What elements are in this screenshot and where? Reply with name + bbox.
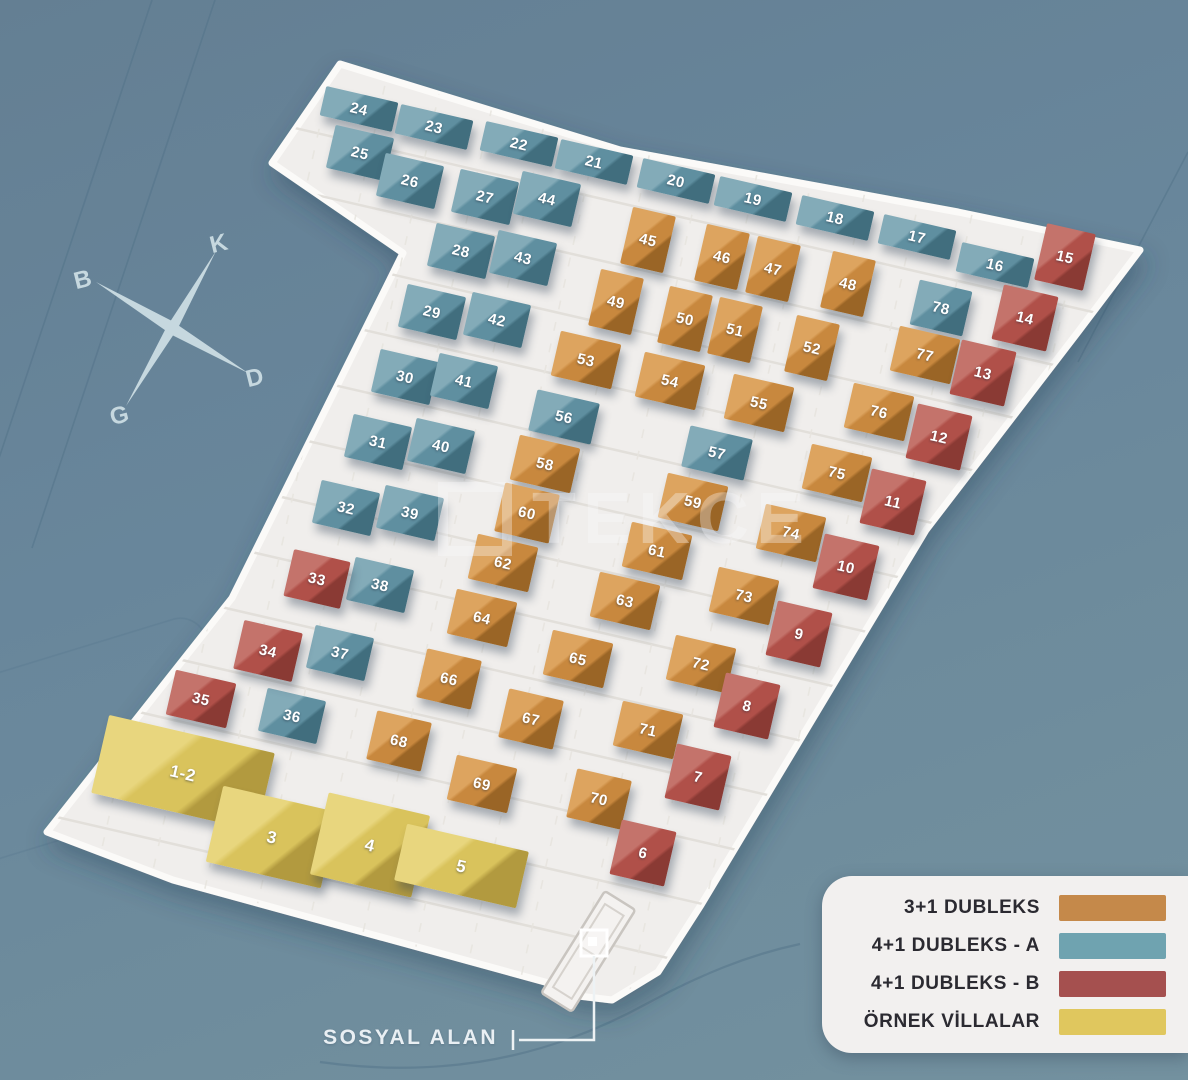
villa-43[interactable]: 43 [489, 230, 557, 286]
legend-row-3plus1-dubleks: 3+1 DUBLEKS [822, 893, 1166, 922]
villa-number: 12 [929, 428, 950, 447]
villa-number: 77 [915, 346, 936, 365]
villa-number: 72 [691, 655, 712, 674]
villa-66[interactable]: 66 [416, 648, 482, 709]
villa-number: 78 [931, 299, 952, 318]
legend-row-ornek-villalar: ÖRNEK VİLLALAR [822, 1007, 1166, 1036]
villa-number: 48 [838, 275, 859, 294]
villa-number: 55 [749, 394, 770, 413]
villa-37[interactable]: 37 [306, 625, 374, 681]
villa-41[interactable]: 41 [430, 353, 498, 409]
villa-number: 71 [638, 721, 659, 740]
villa-24[interactable]: 24 [320, 86, 399, 132]
villa-31[interactable]: 31 [344, 414, 412, 470]
villa-35[interactable]: 35 [166, 670, 237, 729]
villa-47[interactable]: 47 [745, 236, 801, 302]
villa-64[interactable]: 64 [447, 589, 518, 648]
villa-number: 74 [781, 524, 802, 543]
villa-11[interactable]: 11 [859, 468, 926, 535]
villa-number: 20 [666, 172, 687, 191]
villa-32[interactable]: 32 [312, 480, 380, 536]
villa-19[interactable]: 19 [714, 176, 793, 222]
villa-78[interactable]: 78 [910, 280, 973, 337]
villa-51[interactable]: 51 [707, 297, 763, 363]
villa-number: 75 [827, 464, 848, 483]
villa-16[interactable]: 16 [956, 242, 1035, 288]
villa-number: 76 [869, 403, 890, 422]
villa-number: 8 [741, 698, 753, 715]
villa-number: 33 [307, 570, 328, 589]
villa-number: 62 [493, 554, 514, 573]
villa-number: 3 [265, 828, 279, 847]
villa-number: 29 [422, 303, 443, 322]
villa-number: 25 [350, 144, 371, 163]
villa-71[interactable]: 71 [613, 701, 684, 760]
villa-34[interactable]: 34 [233, 620, 303, 682]
villa-number: 17 [907, 228, 928, 247]
villa-7[interactable]: 7 [664, 743, 731, 810]
villa-number: 49 [606, 293, 627, 312]
villa-number: 68 [389, 732, 410, 751]
villa-53[interactable]: 53 [551, 331, 622, 390]
villa-56[interactable]: 56 [528, 389, 600, 444]
villa-number: 64 [472, 609, 493, 628]
villa-number: 50 [675, 310, 696, 329]
villa-15[interactable]: 15 [1034, 223, 1096, 291]
villa-68[interactable]: 68 [366, 710, 432, 771]
villa-60[interactable]: 60 [494, 482, 560, 543]
villa-number: 24 [349, 100, 370, 119]
villa-number: 31 [368, 433, 389, 452]
legend-panel: 3+1 DUBLEKS 4+1 DUBLEKS - A 4+1 DUBLEKS … [822, 876, 1188, 1053]
villa-number: 27 [475, 188, 496, 207]
villa-57[interactable]: 57 [681, 425, 753, 480]
villa-28[interactable]: 28 [427, 223, 495, 279]
villa-76[interactable]: 76 [844, 383, 915, 442]
villa-number: 57 [707, 444, 728, 463]
villa-number: 19 [743, 190, 764, 209]
villa-number: 26 [400, 172, 421, 191]
villa-number: 54 [660, 372, 681, 391]
villa-9[interactable]: 9 [765, 600, 832, 667]
villa-number: 16 [985, 256, 1006, 275]
villa-33[interactable]: 33 [283, 549, 350, 609]
villa-number: 37 [330, 644, 351, 663]
villa-75[interactable]: 75 [802, 444, 873, 503]
villa-number: 44 [537, 190, 558, 209]
villa-52[interactable]: 52 [784, 315, 840, 381]
villa-number: 34 [258, 642, 279, 661]
villa-39[interactable]: 39 [376, 485, 444, 541]
villa-number: 47 [763, 260, 784, 279]
villa-number: 6 [637, 845, 649, 862]
villa-number: 53 [576, 351, 597, 370]
villa-21[interactable]: 21 [555, 139, 634, 185]
villa-42[interactable]: 42 [463, 292, 531, 348]
villa-67[interactable]: 67 [498, 688, 564, 749]
villa-55[interactable]: 55 [724, 374, 795, 433]
villa-number: 7 [692, 769, 704, 786]
villa-5[interactable]: 5 [394, 824, 529, 909]
villa-number: 13 [973, 364, 994, 383]
villa-number: 1-2 [168, 762, 197, 784]
legend-swatch-red [1059, 971, 1166, 997]
villa-61[interactable]: 61 [622, 522, 693, 581]
villa-number: 67 [521, 710, 542, 729]
villa-17[interactable]: 17 [878, 214, 957, 260]
villa-40[interactable]: 40 [407, 418, 475, 474]
villa-30[interactable]: 30 [371, 349, 439, 405]
villa-number: 4 [363, 836, 377, 855]
villa-65[interactable]: 65 [543, 630, 614, 689]
villa-number: 65 [568, 650, 589, 669]
legend-label: 4+1 DUBLEKS - A [872, 935, 1040, 957]
site-plan-stage: K B D G 24232221201918171625262744284329… [0, 0, 1188, 1080]
villa-77[interactable]: 77 [890, 326, 961, 385]
villa-number: 11 [883, 493, 903, 511]
villa-number: 21 [584, 153, 605, 172]
villa-62[interactable]: 62 [468, 534, 539, 593]
villa-number: 73 [734, 587, 755, 606]
villa-63[interactable]: 63 [590, 572, 661, 631]
villa-number: 18 [825, 209, 846, 228]
social-area-label: SOSYAL ALAN [320, 1026, 498, 1050]
villa-number: 70 [589, 790, 610, 809]
villa-27[interactable]: 27 [451, 169, 519, 225]
villa-18[interactable]: 18 [796, 195, 875, 241]
villa-number: 30 [395, 368, 416, 387]
villa-number: 51 [725, 321, 746, 340]
villa-59[interactable]: 59 [658, 473, 729, 532]
villa-26[interactable]: 26 [376, 153, 444, 209]
legend-label: ÖRNEK VİLLALAR [864, 1011, 1040, 1033]
villa-number: 35 [191, 690, 212, 709]
villa-49[interactable]: 49 [588, 269, 644, 335]
villa-number: 9 [793, 626, 805, 643]
legend-row-4plus1-dubleks-b: 4+1 DUBLEKS - B [822, 969, 1166, 998]
villa-number: 46 [712, 248, 733, 267]
villa-number: 28 [451, 242, 472, 261]
villa-number: 23 [424, 118, 445, 137]
legend-swatch-yellow [1059, 1009, 1166, 1035]
villa-6[interactable]: 6 [609, 819, 676, 886]
villa-20[interactable]: 20 [637, 158, 716, 204]
villa-number: 5 [454, 857, 468, 876]
villa-number: 40 [431, 437, 452, 456]
villa-12[interactable]: 12 [905, 403, 972, 470]
villa-73[interactable]: 73 [709, 567, 780, 626]
legend-label: 3+1 DUBLEKS [904, 897, 1040, 919]
villa-14[interactable]: 14 [991, 284, 1058, 351]
villa-number: 45 [638, 231, 659, 250]
villa-number: 60 [517, 504, 538, 523]
villa-number: 61 [647, 542, 668, 561]
legend-swatch-orange [1059, 895, 1166, 921]
villa-13[interactable]: 13 [949, 339, 1016, 406]
villa-number: 14 [1015, 309, 1036, 328]
villa-number: 32 [336, 499, 357, 518]
villa-number: 52 [802, 339, 823, 358]
villa-46[interactable]: 46 [694, 224, 750, 290]
legend-swatch-teal [1059, 933, 1166, 959]
villa-54[interactable]: 54 [635, 352, 706, 411]
villa-69[interactable]: 69 [447, 755, 518, 814]
villa-number: 38 [370, 576, 391, 595]
villa-36[interactable]: 36 [258, 688, 326, 744]
villa-50[interactable]: 50 [657, 286, 713, 352]
villa-number: 41 [454, 372, 475, 391]
villa-10[interactable]: 10 [812, 533, 879, 600]
villa-number: 15 [1055, 248, 1076, 267]
villa-number: 42 [487, 311, 508, 330]
villa-44[interactable]: 44 [513, 171, 581, 227]
villa-29[interactable]: 29 [398, 284, 466, 340]
villa-48[interactable]: 48 [820, 251, 876, 317]
villa-number: 59 [683, 493, 704, 512]
villa-number: 22 [509, 135, 530, 154]
villa-23[interactable]: 23 [395, 104, 474, 150]
villa-number: 63 [615, 592, 636, 611]
villa-45[interactable]: 45 [620, 207, 676, 273]
villa-74[interactable]: 74 [756, 504, 827, 563]
villa-58[interactable]: 58 [510, 435, 581, 494]
villa-number: 56 [554, 408, 575, 427]
villa-number: 58 [535, 455, 556, 474]
villa-38[interactable]: 38 [346, 557, 414, 613]
legend-label: 4+1 DUBLEKS - B [871, 973, 1040, 995]
villa-number: 69 [472, 775, 493, 794]
legend-row-4plus1-dubleks-a: 4+1 DUBLEKS - A [822, 931, 1166, 960]
villa-number: 43 [513, 249, 534, 268]
villa-22[interactable]: 22 [480, 121, 559, 167]
villa-number: 39 [400, 504, 421, 523]
villa-number: 66 [439, 670, 460, 689]
villa-number: 36 [282, 707, 303, 726]
villa-8[interactable]: 8 [713, 672, 780, 739]
villa-number: 10 [836, 558, 857, 577]
